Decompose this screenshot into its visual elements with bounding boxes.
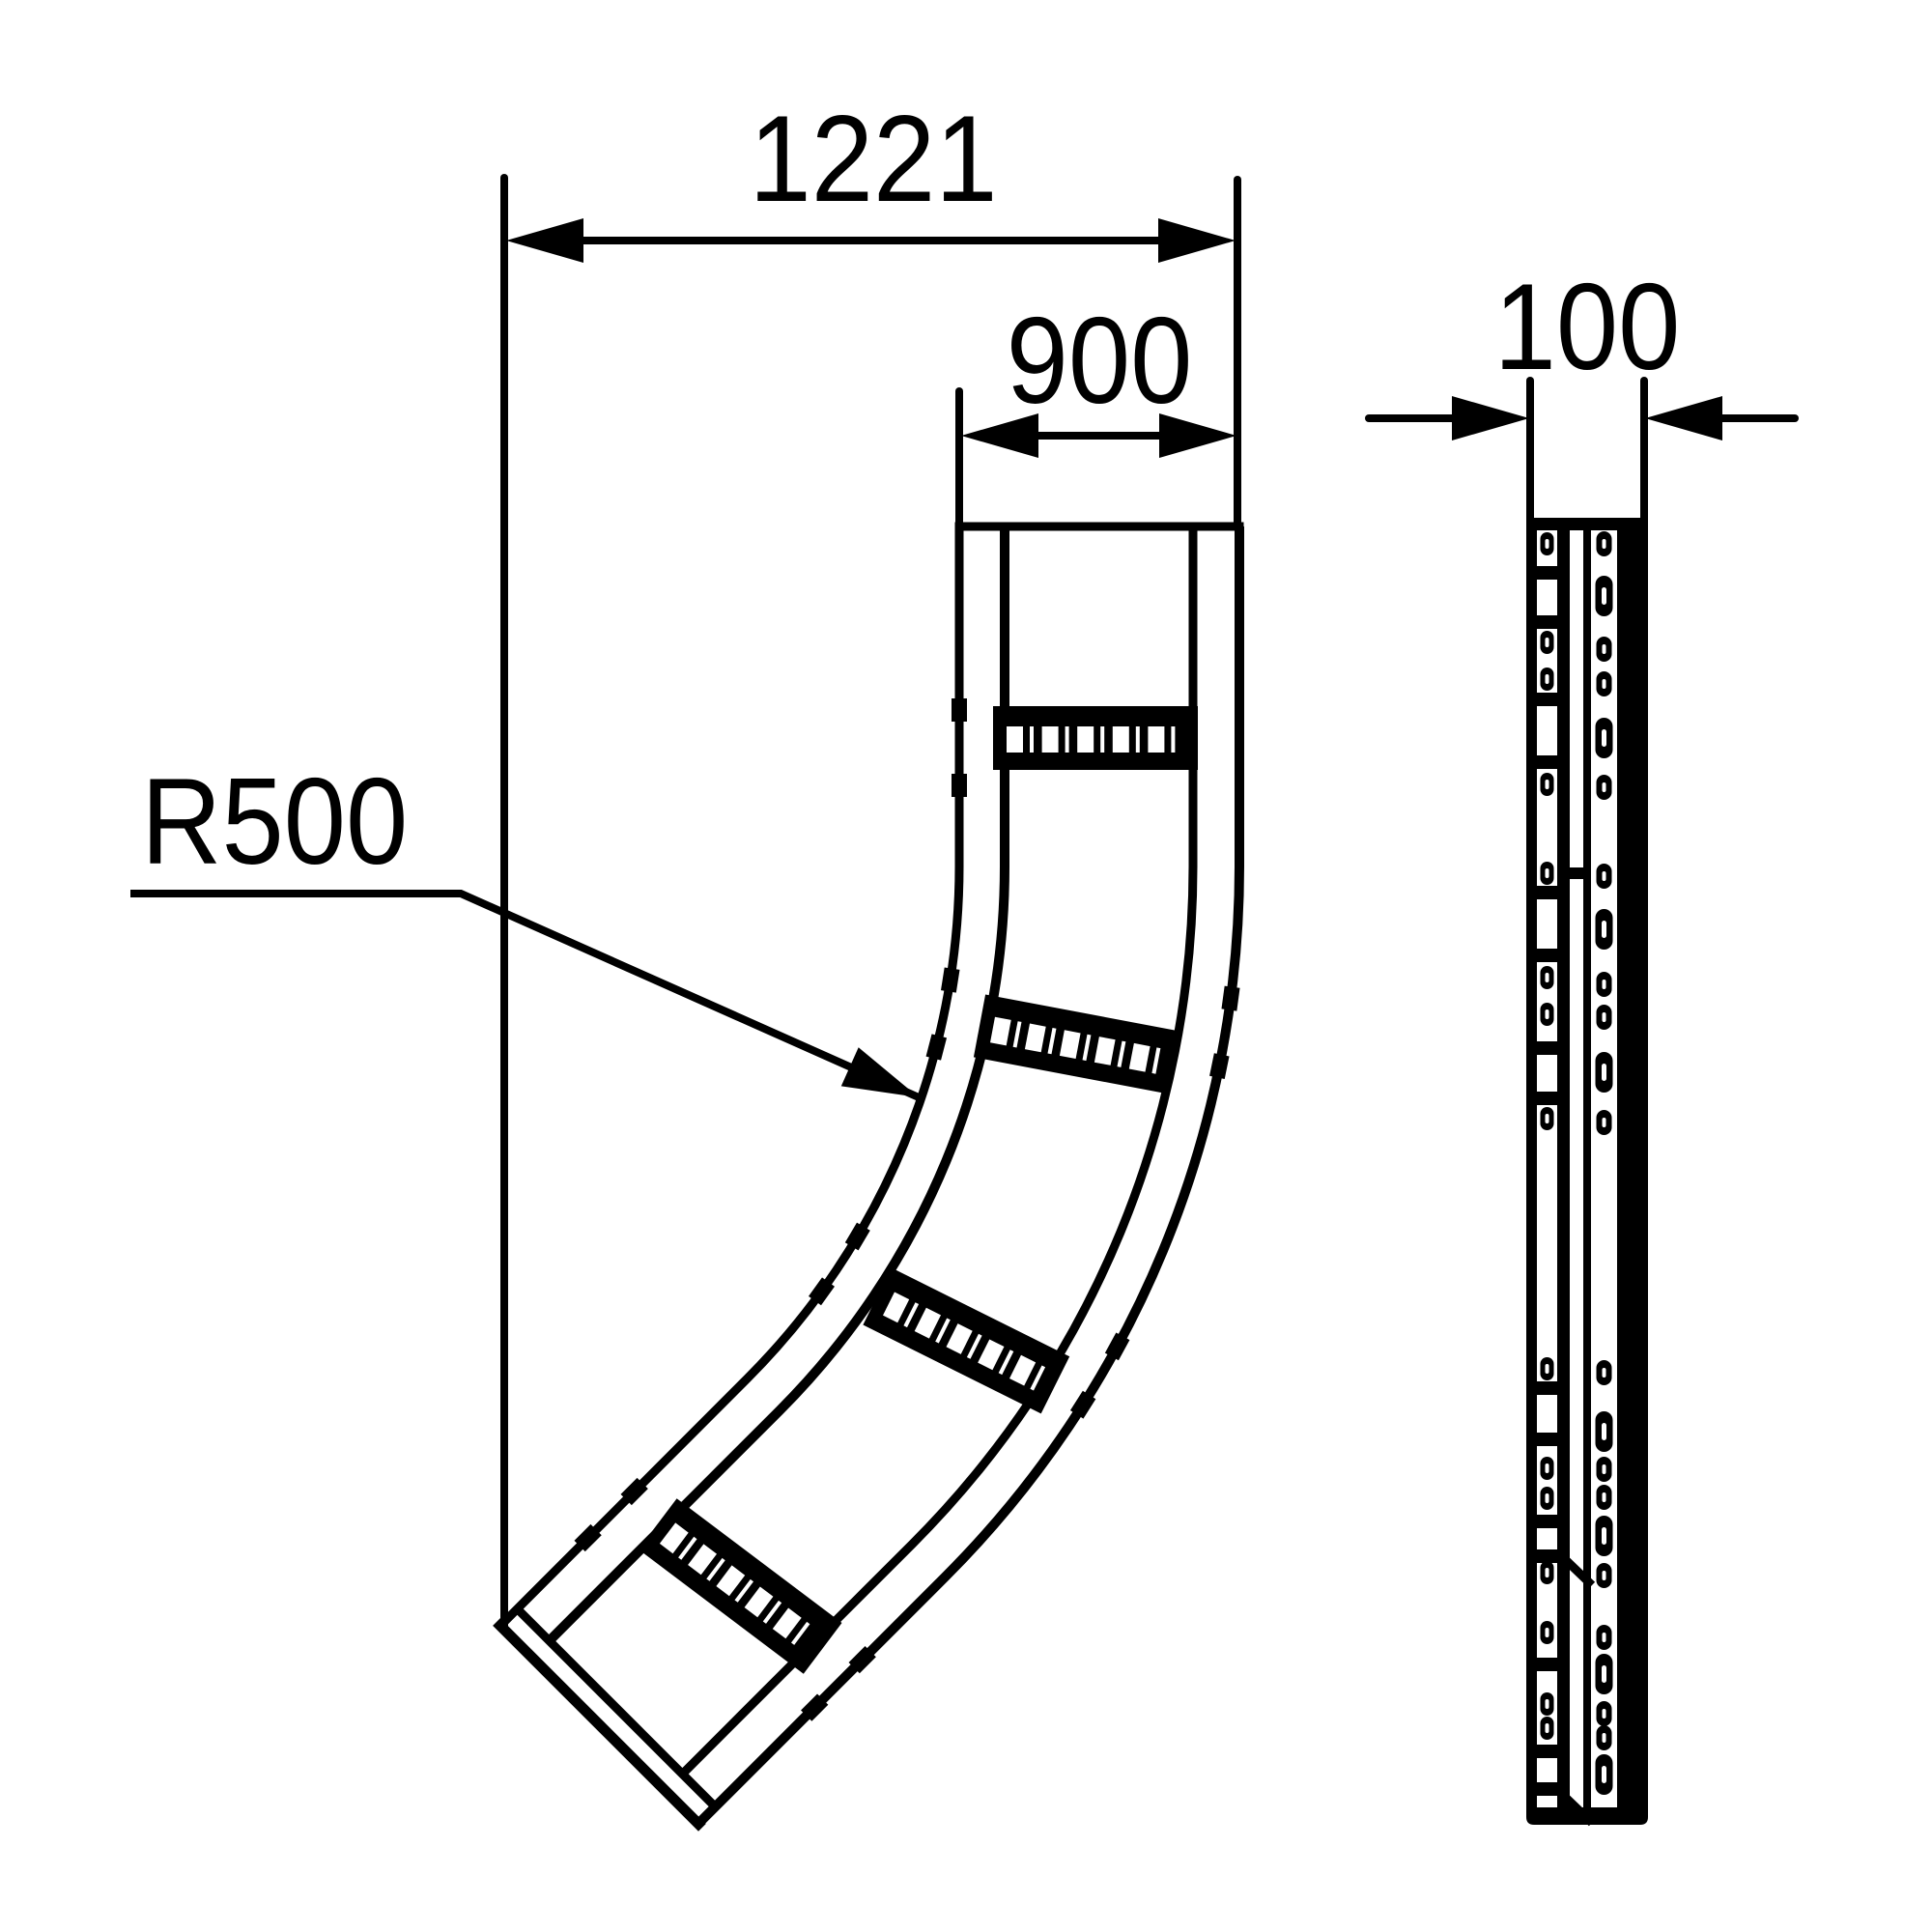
- svg-text:100: 100: [1494, 258, 1681, 395]
- svg-text:900: 900: [1007, 292, 1193, 429]
- svg-text:1221: 1221: [749, 90, 997, 227]
- svg-text:R500: R500: [141, 753, 408, 890]
